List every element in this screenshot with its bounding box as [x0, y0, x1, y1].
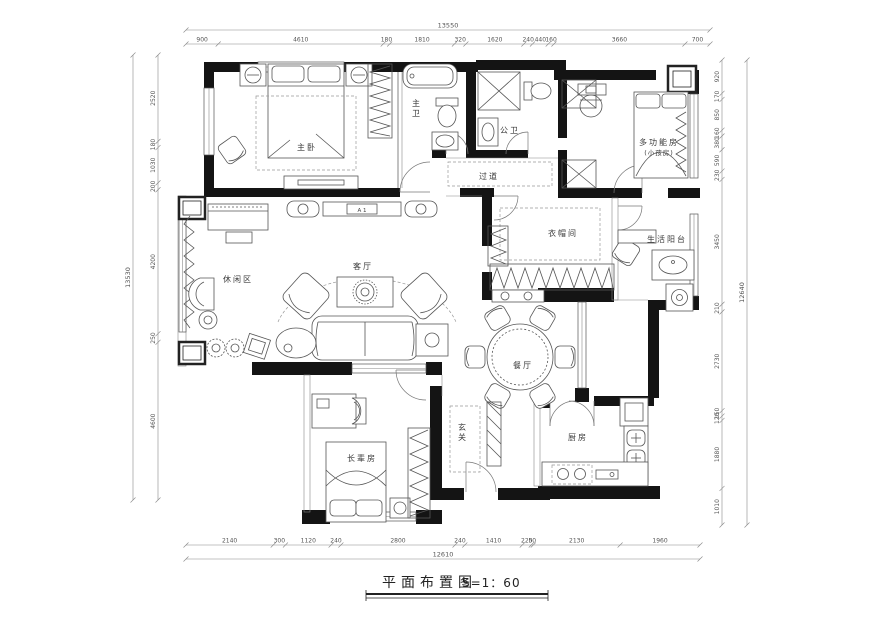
dim-right: 160 — [714, 127, 721, 139]
dim-right: 380 — [714, 137, 721, 149]
master-bed — [256, 64, 356, 170]
dim-strip-left: 252018010302004200250460013530 — [124, 53, 161, 503]
leisure-side-table — [199, 311, 217, 329]
dim-bottom: 50 — [528, 538, 536, 545]
leisure-armchair — [189, 278, 214, 310]
dim-right: 1880 — [714, 447, 721, 462]
tv-lamp-table-left — [287, 201, 319, 217]
sink-public — [478, 118, 498, 146]
title-block: 平面布置图 S=1：60 — [366, 575, 548, 601]
dim-left: 4200 — [150, 254, 157, 269]
room-label-living-balcony: 生活阳台 — [647, 234, 687, 244]
leisure-plants — [207, 333, 271, 359]
column-topright — [668, 66, 696, 92]
door-master — [400, 162, 430, 192]
floor-plan-canvas: 主卧主卫公卫过道多功能房(小孩房)衣帽间生活阳台休闲区客厅餐厅玄关长辈房厨房A … — [0, 0, 878, 623]
living-side-table — [416, 324, 448, 356]
dim-top: 4610 — [293, 37, 308, 44]
dim-right: 170 — [714, 90, 721, 102]
shower — [478, 72, 520, 110]
room-label-leisure-area: 休闲区 — [223, 274, 253, 284]
room-label-elder-room: 长辈房 — [347, 453, 377, 463]
corridor-rug — [448, 162, 552, 186]
tv-console-master — [284, 176, 358, 189]
room-label-kitchen: 厨房 — [568, 432, 588, 442]
bathtub — [403, 64, 457, 88]
tv-lamp-table-right — [405, 201, 437, 217]
window-kids-right — [690, 94, 698, 178]
column-leisure-bottom — [179, 342, 205, 364]
dim-right: 230 — [714, 169, 721, 181]
accent-chair-left — [281, 271, 332, 322]
dim-left: 2520 — [150, 90, 157, 105]
cloakroom-wardrobe — [490, 264, 614, 290]
dim-right: 2730 — [714, 353, 721, 368]
dim-bottom: 1120 — [301, 538, 316, 545]
dim-top: 900 — [196, 37, 208, 44]
elder-wardrobe — [408, 428, 430, 518]
dim-left: 180 — [150, 139, 157, 151]
dim-total-left: 13530 — [124, 267, 132, 288]
dim-right: 120 — [714, 412, 721, 424]
room-label-living-room: 客厅 — [353, 261, 373, 271]
shoe-cabinet — [487, 402, 501, 466]
dim-strip-bottom: 2140300112024028002401410220502130196012… — [184, 538, 703, 562]
dim-top: 240 — [522, 37, 534, 44]
sink-master — [432, 132, 458, 150]
room-label-multi-room: 多功能房 — [639, 137, 679, 147]
window-dining-right — [578, 302, 586, 388]
piano — [208, 204, 268, 243]
dim-top: 160 — [545, 37, 557, 44]
room-label-master-bath: 主卫 — [412, 98, 422, 118]
kids-desk — [578, 84, 606, 95]
nightstand-left — [240, 64, 266, 86]
dim-strip-top: 9004610180181032016202404401603660700135… — [184, 22, 713, 47]
dim-top: 1810 — [414, 37, 429, 44]
dim-top: 700 — [692, 37, 704, 44]
dim-bottom: 2800 — [390, 538, 405, 545]
annotation-tv-unit: A 1 — [357, 208, 366, 214]
dim-right: 850 — [714, 109, 721, 121]
kitchen-counter-bottom — [542, 462, 648, 486]
dim-left: 250 — [150, 332, 157, 344]
room-label-foyer: 玄关 — [458, 422, 468, 442]
dim-total-right: 12640 — [738, 282, 746, 303]
door-entry — [466, 462, 496, 492]
dim-strip-right: 9201708501603805902303450210273015012018… — [714, 58, 750, 528]
dim-bottom: 240 — [454, 538, 466, 545]
room-label-corridor: 过道 — [479, 171, 499, 181]
window-master-left — [204, 88, 214, 155]
dim-top: 1620 — [487, 37, 502, 44]
column-leisure-top — [179, 197, 205, 219]
door-kitchen-right — [569, 401, 594, 426]
room-label-dining-room: 餐厅 — [513, 361, 533, 370]
dim-bottom: 2130 — [569, 538, 584, 545]
dim-top: 320 — [454, 37, 466, 44]
toilet-master — [436, 98, 458, 127]
room-label-cloakroom: 衣帽间 — [548, 228, 578, 238]
drawing-scale: S=1：60 — [462, 576, 521, 590]
dim-left: 1030 — [150, 157, 157, 172]
balcony-basin — [652, 250, 694, 280]
dim-right: 1010 — [714, 499, 721, 514]
door-balcony — [618, 206, 642, 230]
dim-right: 590 — [714, 155, 721, 167]
dim-bottom: 2140 — [222, 538, 237, 545]
master-chair — [217, 135, 248, 166]
kids-chair — [580, 95, 602, 117]
dim-bottom: 1960 — [652, 538, 667, 545]
dim-right: 210 — [714, 302, 721, 314]
dim-bottom: 240 — [330, 538, 342, 545]
door-kitchen-left — [550, 401, 575, 426]
fridge — [620, 398, 648, 426]
dim-total-top: 13550 — [438, 22, 459, 30]
dim-bottom: 1410 — [486, 538, 501, 545]
room-label2-multi-room: (小孩房) — [644, 148, 674, 157]
dim-left: 4600 — [150, 413, 157, 428]
ottoman — [276, 328, 316, 358]
kids-closet-bottom — [562, 160, 596, 188]
dim-top: 180 — [381, 37, 393, 44]
elder-desk — [312, 394, 356, 428]
sofa — [312, 316, 418, 360]
room-label-public-bath: 公卫 — [500, 126, 520, 135]
dining-sideboard — [492, 290, 544, 302]
elder-nightstand — [390, 498, 410, 518]
dim-top: 3660 — [612, 37, 627, 44]
washing-machine — [666, 284, 693, 311]
kids-bed — [634, 92, 688, 178]
dining-table — [487, 324, 553, 390]
dim-right: 3450 — [714, 234, 721, 249]
door-elder — [396, 370, 426, 400]
window-elder-top — [352, 364, 426, 373]
toilet-public — [524, 82, 551, 100]
floor-plan-page: 主卧主卫公卫过道多功能房(小孩房)衣帽间生活阳台休闲区客厅餐厅玄关长辈房厨房A … — [0, 0, 878, 623]
room-label-master-bedroom: 主卧 — [297, 142, 317, 152]
dim-right: 920 — [714, 71, 721, 83]
dim-bottom: 300 — [274, 538, 286, 545]
coffee-table — [337, 277, 393, 307]
dim-left: 200 — [150, 180, 157, 192]
dim-total-bottom: 12610 — [433, 551, 454, 559]
accent-chair-right — [399, 271, 450, 322]
